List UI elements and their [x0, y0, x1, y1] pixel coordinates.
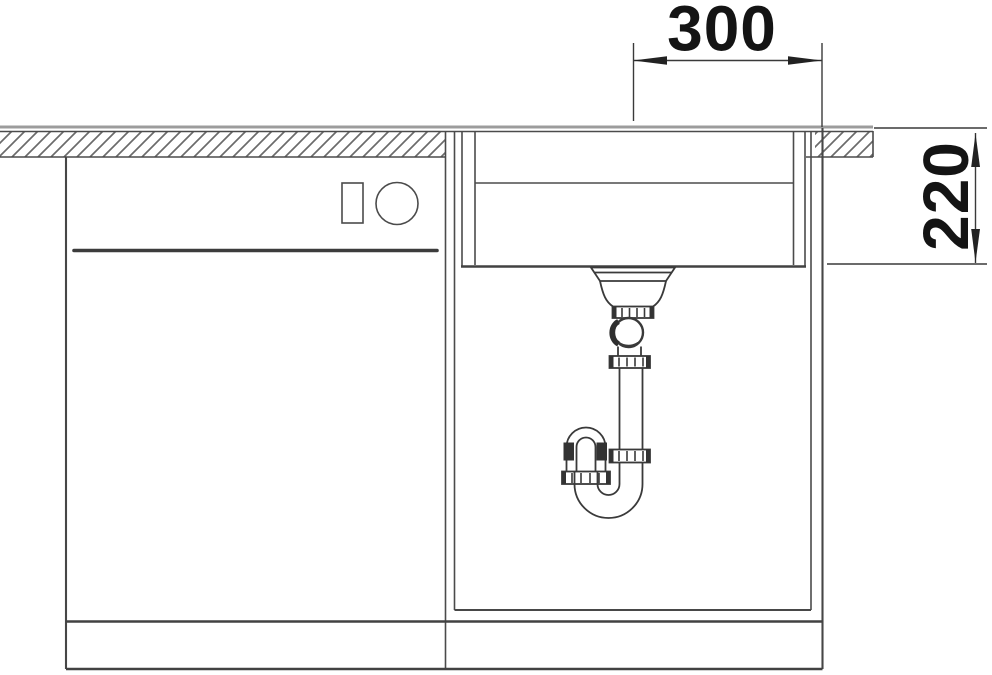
hook-side-nut-left — [564, 443, 575, 461]
union-nut-middle-end-left — [610, 450, 614, 463]
countertop-hatch-right — [815, 131, 873, 157]
dimension-horizontal-value: 300 — [667, 0, 777, 65]
union-nut-lower-end-left — [562, 472, 566, 485]
threaded-ring-end-left — [613, 307, 617, 319]
sink-installation-drawing: 300 220 — [0, 0, 992, 675]
dimension-vertical-value: 220 — [910, 141, 982, 251]
countertop-hatch-left — [0, 131, 445, 157]
threaded-ring-end-right — [650, 307, 654, 319]
union-nut-upper-end-left — [610, 356, 614, 368]
installation-drawing-canvas: 300 220 — [0, 0, 992, 675]
drawing-background — [0, 0, 992, 675]
union-nut-middle-end-right — [646, 450, 650, 463]
union-nut-upper-end-right — [646, 356, 650, 368]
hook-side-nut-right — [597, 443, 608, 461]
union-nut-lower-end-right — [606, 472, 610, 485]
